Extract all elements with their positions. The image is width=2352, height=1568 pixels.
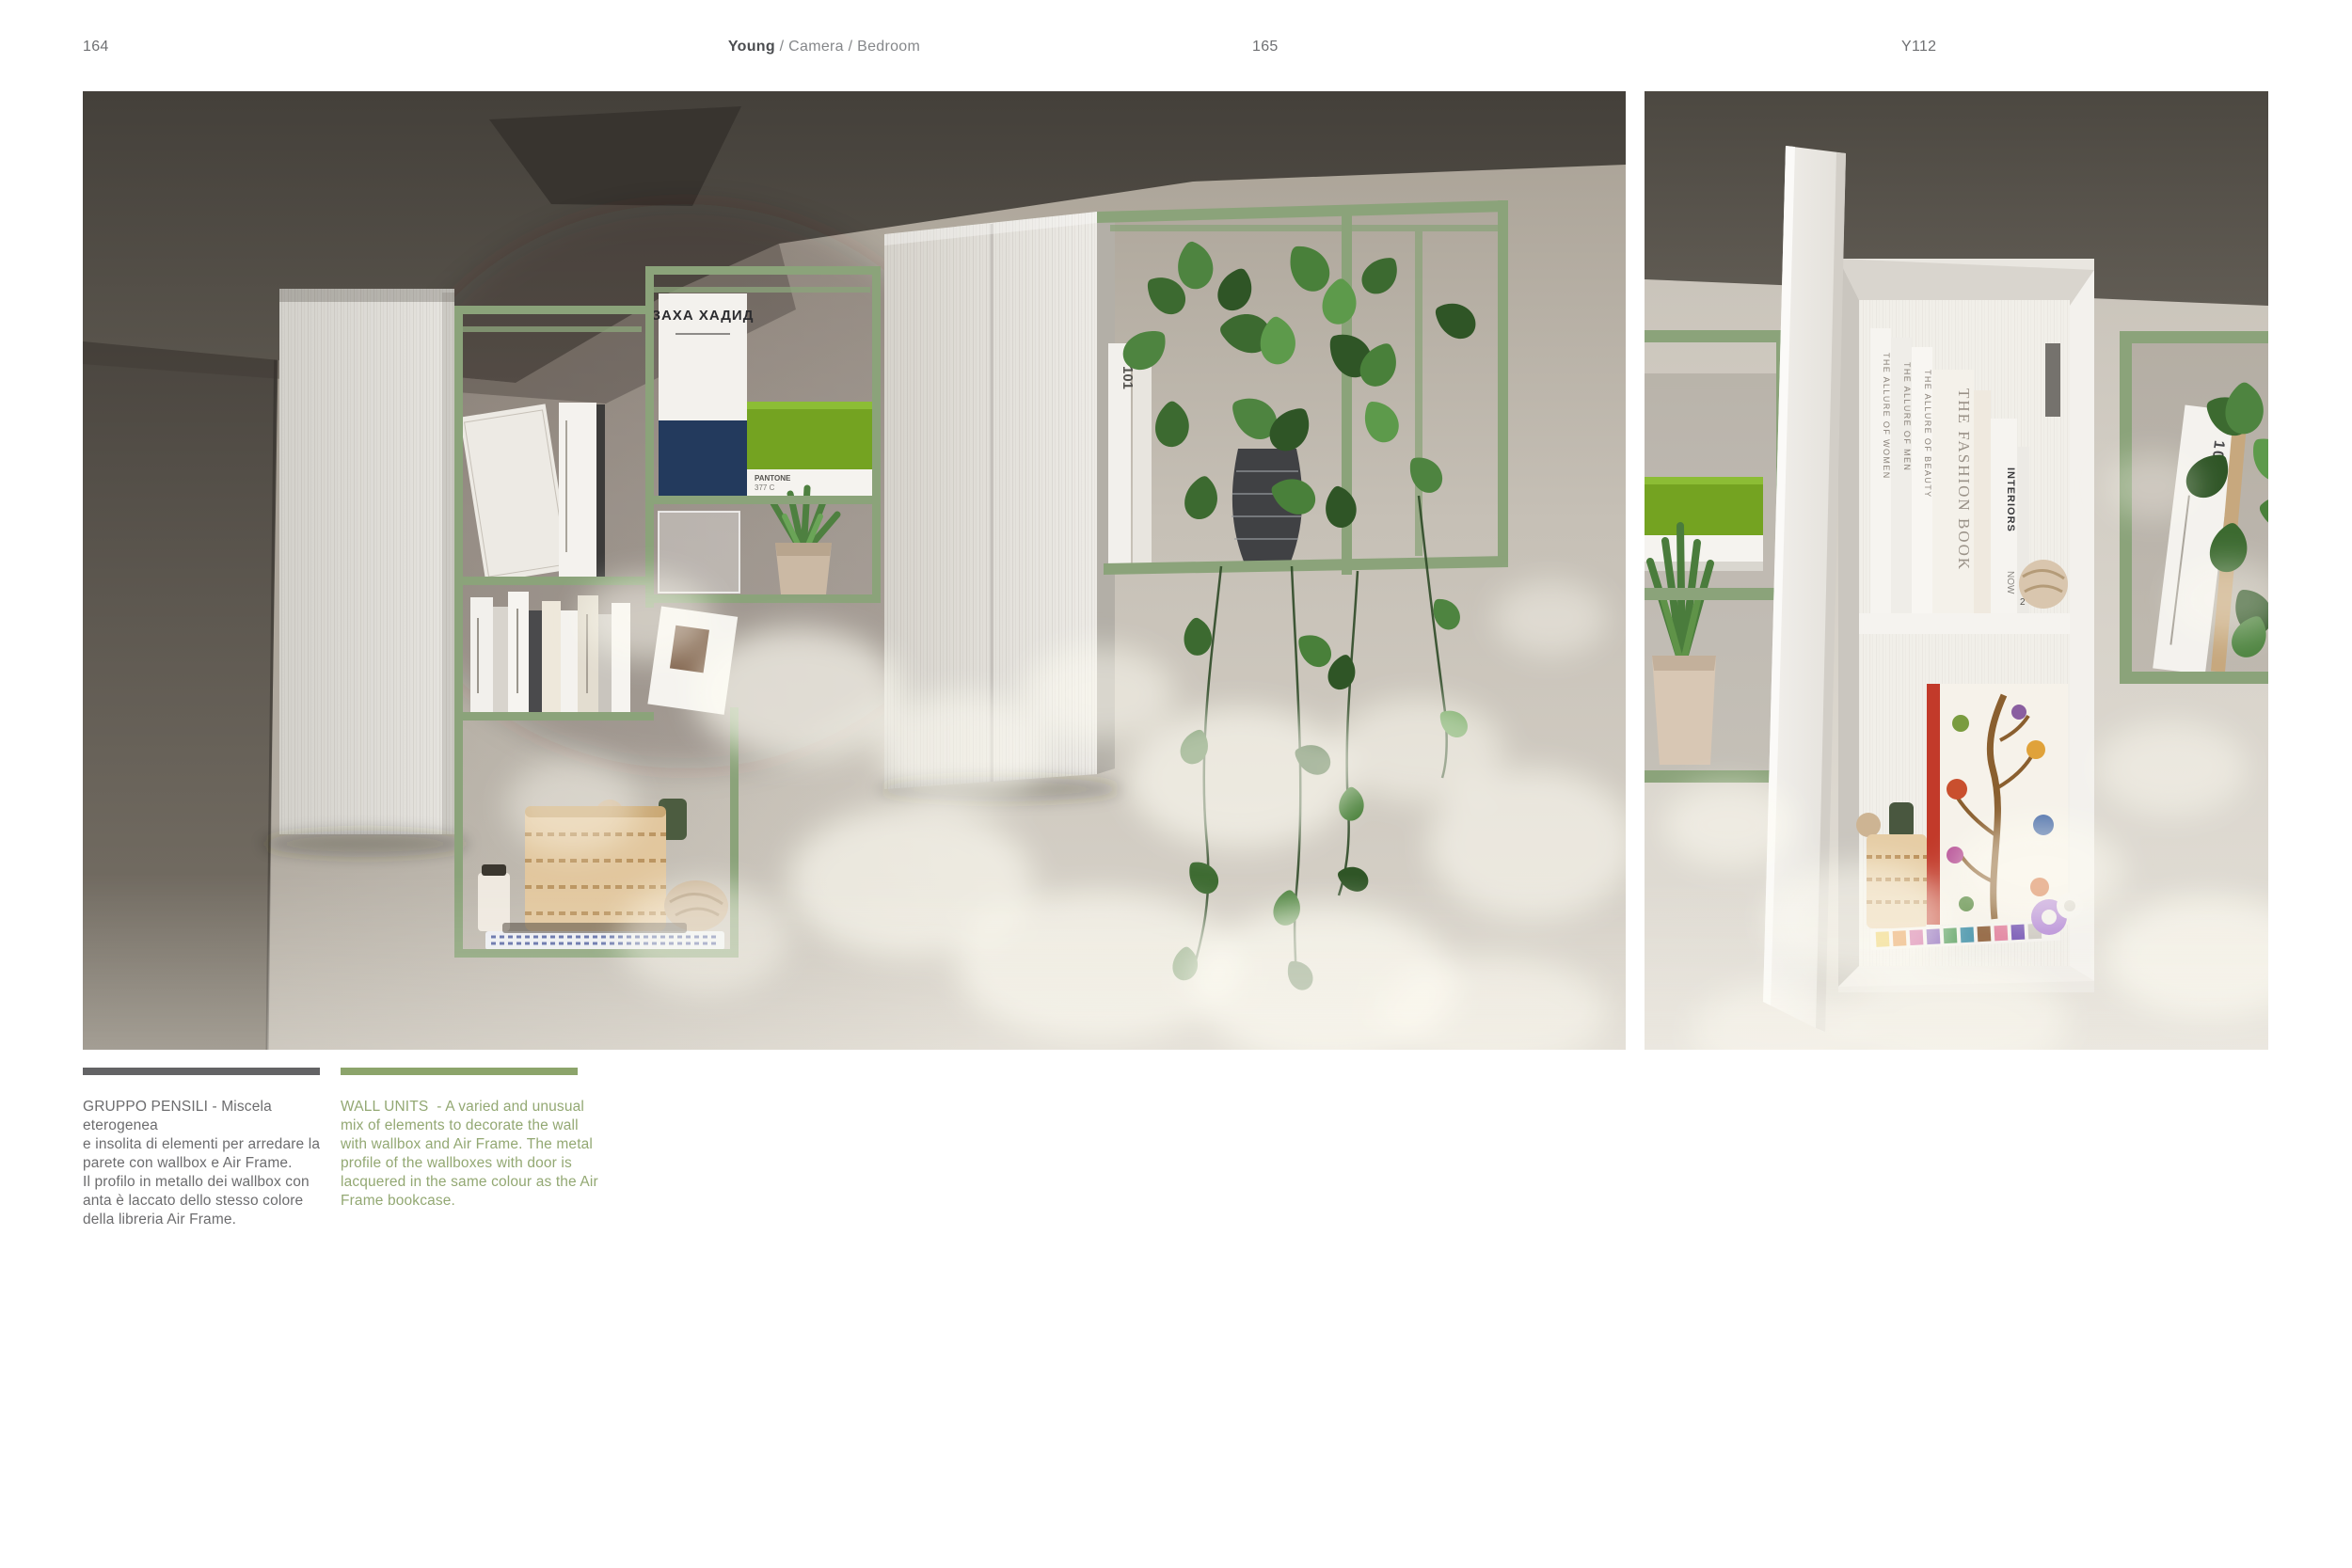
breadcrumb-path: / Camera / Bedroom xyxy=(775,39,920,55)
catalog-spread: 164 Young / Camera / Bedroom 165 Y112 xyxy=(0,0,2352,1568)
svg-text:PANTONE: PANTONE xyxy=(755,474,791,483)
pantone-box-right xyxy=(1645,477,1763,571)
tall-cabinet xyxy=(262,289,469,857)
breadcrumb-brand: Young xyxy=(728,39,775,55)
pantone-box: PANTONE 377 C xyxy=(747,402,872,496)
photo-right-illustration: THE ALLURE OF WOMEN THE ALLURE OF MEN TH… xyxy=(1645,91,2268,1050)
photo-open-wallbox: THE ALLURE OF WOMEN THE ALLURE OF MEN TH… xyxy=(1645,91,2268,1050)
zaha-magazine: ЗАХА ХАДИД xyxy=(652,293,755,496)
svg-text:THE ALLURE OF BEAUTY: THE ALLURE OF BEAUTY xyxy=(1923,370,1932,499)
svg-text:THE ALLURE OF MEN: THE ALLURE OF MEN xyxy=(1902,362,1912,471)
caption-rule-gray xyxy=(83,1068,320,1075)
photo-left-illustration: ЗАХА ХАДИД PANTONE 377 C xyxy=(83,91,1626,1050)
left-shelf xyxy=(1645,330,1788,783)
svg-text:ЗАХА ХАДИД: ЗАХА ХАДИД xyxy=(652,308,755,324)
caption-rule-green xyxy=(341,1068,578,1075)
breadcrumb: Young / Camera / Bedroom xyxy=(728,39,920,55)
page-number-left: 164 xyxy=(83,39,109,55)
photo-bedroom-wall-units: ЗАХА ХАДИД PANTONE 377 C xyxy=(83,91,1626,1050)
svg-text:NOW: NOW xyxy=(2005,571,2015,594)
svg-text:101: 101 xyxy=(1120,366,1136,389)
cabinet-shelf xyxy=(1859,613,2070,634)
light-wash xyxy=(1645,872,2268,1050)
caption-english: WALL UNITS - A varied and unusual mix of… xyxy=(341,1098,604,1211)
light-wash xyxy=(83,872,1626,1050)
door-handle-recess xyxy=(2045,343,2060,417)
caption-italian: GRUPPO PENSILI - Miscela eterogenea e in… xyxy=(83,1098,346,1229)
model-code: Y112 xyxy=(1901,39,1936,55)
twine-ball xyxy=(2019,560,2068,609)
svg-text:377 C: 377 C xyxy=(755,483,775,492)
svg-text:INTERIORS: INTERIORS xyxy=(2005,467,2016,532)
page-number-right: 165 xyxy=(1252,39,1279,55)
svg-text:THE FASHION BOOK: THE FASHION BOOK xyxy=(1955,388,1973,571)
svg-text:THE ALLURE OF WOMEN: THE ALLURE OF WOMEN xyxy=(1882,353,1891,480)
